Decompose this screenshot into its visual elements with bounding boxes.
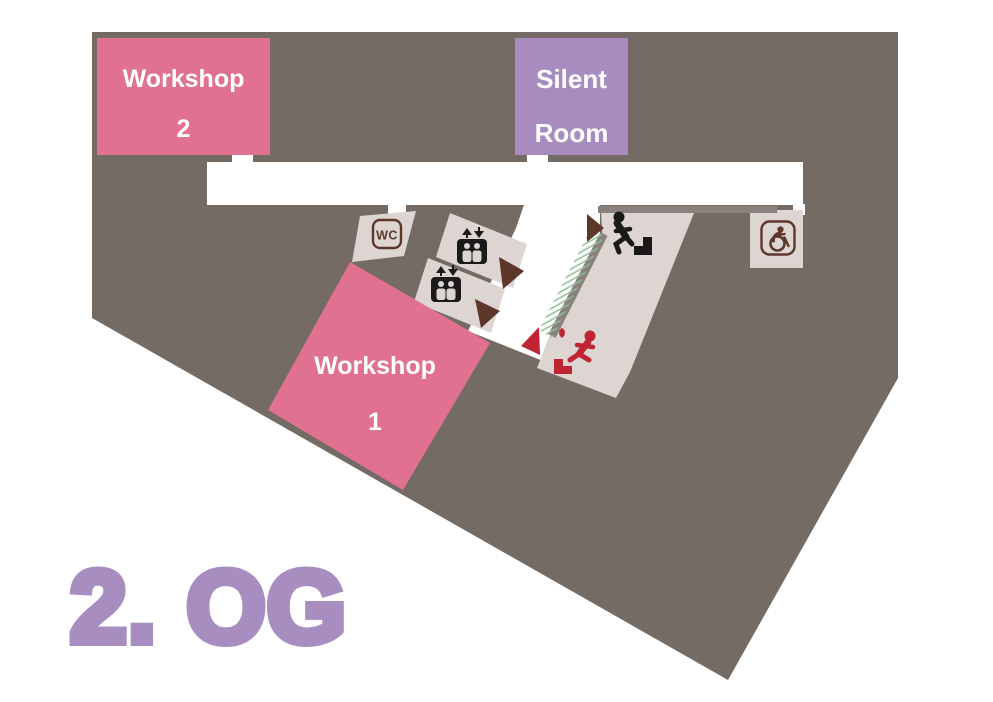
room-workshop-2 [97, 38, 270, 155]
wall-top-strip [598, 206, 777, 213]
floor-level-title: 2. OG [70, 556, 347, 658]
svg-text:WC: WC [376, 229, 398, 243]
floor-plan-page: WC [0, 0, 993, 702]
room-silent [515, 38, 628, 155]
